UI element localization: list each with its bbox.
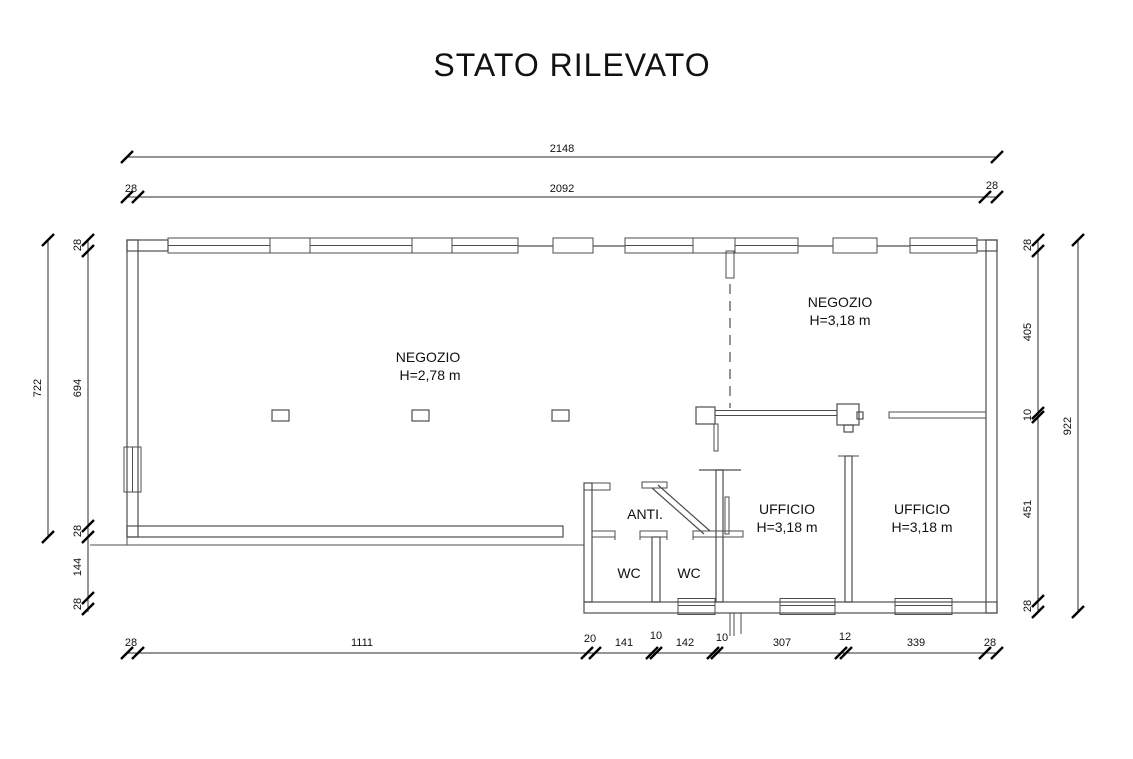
wall-pier — [412, 238, 452, 253]
dim-right-overall: 922 — [1062, 234, 1084, 618]
dim-left-overall: 722 — [32, 234, 54, 543]
dim-value: 28 — [984, 637, 996, 649]
room-labels: NEGOZIO H=2,78 m NEGOZIO H=3,18 m UFFICI… — [396, 294, 953, 581]
room-label-ufficio-1: UFFICIO — [759, 501, 815, 517]
anti-wc-walls — [584, 482, 743, 602]
room-label-ufficio-2: UFFICIO — [894, 501, 950, 517]
room-height-ufficio-1: H=3,18 m — [756, 519, 817, 535]
wall-pier — [833, 238, 877, 253]
dim-value: 12 — [839, 631, 851, 643]
dim-value: 144 — [72, 558, 84, 576]
window-box — [452, 238, 518, 253]
dim-value: 1111 — [351, 637, 373, 649]
storefront-windows — [168, 238, 977, 253]
dim-value: 10 — [716, 632, 728, 644]
dim-value: 142 — [676, 637, 694, 649]
dashed-partition — [726, 251, 734, 408]
dim-value: 10 — [1022, 409, 1034, 421]
bottom-windows — [678, 599, 952, 637]
dim-value: 405 — [1022, 323, 1034, 341]
wall-pier — [553, 238, 593, 253]
window-box — [310, 238, 412, 253]
door-leaf — [658, 485, 710, 531]
dim-value: 722 — [32, 379, 44, 397]
dim-value: 694 — [72, 379, 84, 397]
room-label-negozio-right: NEGOZIO — [808, 294, 873, 310]
dim-value: 2092 — [550, 183, 574, 195]
dim-value: 339 — [907, 637, 925, 649]
column — [272, 410, 289, 421]
dim-right-chain: 28 405 10 451 28 — [1022, 234, 1044, 618]
dim-top-overall: 2148 — [121, 143, 1003, 163]
window-box — [780, 599, 835, 615]
dim-value: 28 — [1022, 239, 1034, 251]
window-box — [735, 238, 798, 253]
column — [552, 410, 569, 421]
columns — [272, 410, 569, 421]
wall-pier — [270, 238, 310, 253]
dim-left-chain: 28 694 28 144 28 — [72, 234, 94, 615]
dim-value: 10 — [650, 630, 662, 642]
room-height-negozio-right: H=3,18 m — [809, 312, 870, 328]
dim-value: 28 — [72, 239, 84, 251]
column — [412, 410, 429, 421]
room-label-wc-1: WC — [617, 565, 640, 581]
dim-value: 922 — [1062, 417, 1074, 435]
floor-plan-drawing: STATO RILEVATO — [0, 0, 1133, 759]
dim-value: 28 — [1022, 600, 1034, 612]
window-box — [168, 238, 270, 253]
window-box — [910, 238, 977, 253]
dim-value: 28 — [986, 180, 998, 192]
dim-value: 28 — [72, 525, 84, 537]
room-label-negozio-main: NEGOZIO — [396, 349, 461, 365]
dim-value: 307 — [773, 637, 791, 649]
dim-bottom-chain: 28 1111 20 141 10 142 10 307 12 339 28 — [121, 630, 1003, 659]
mid-partition — [696, 404, 986, 470]
room-label-anti: ANTI. — [627, 506, 663, 522]
floor-plan-page: STATO RILEVATO — [0, 0, 1133, 759]
dim-value: 451 — [1022, 500, 1034, 518]
dim-value: 28 — [125, 637, 137, 649]
room-height-ufficio-2: H=3,18 m — [891, 519, 952, 535]
dim-value: 28 — [125, 183, 137, 195]
dim-value: 141 — [615, 637, 633, 649]
window-box — [895, 599, 952, 615]
drawing-title: STATO RILEVATO — [433, 47, 710, 83]
dim-value: 28 — [72, 598, 84, 610]
window-box — [678, 599, 715, 615]
dim-top-inner: 28 2092 28 — [121, 180, 1003, 203]
room-label-wc-2: WC — [677, 565, 700, 581]
dim-value: 20 — [584, 633, 596, 645]
room-height-negozio-main: H=2,78 m — [399, 367, 460, 383]
dim-value: 2148 — [550, 143, 574, 155]
window-box — [625, 238, 693, 253]
